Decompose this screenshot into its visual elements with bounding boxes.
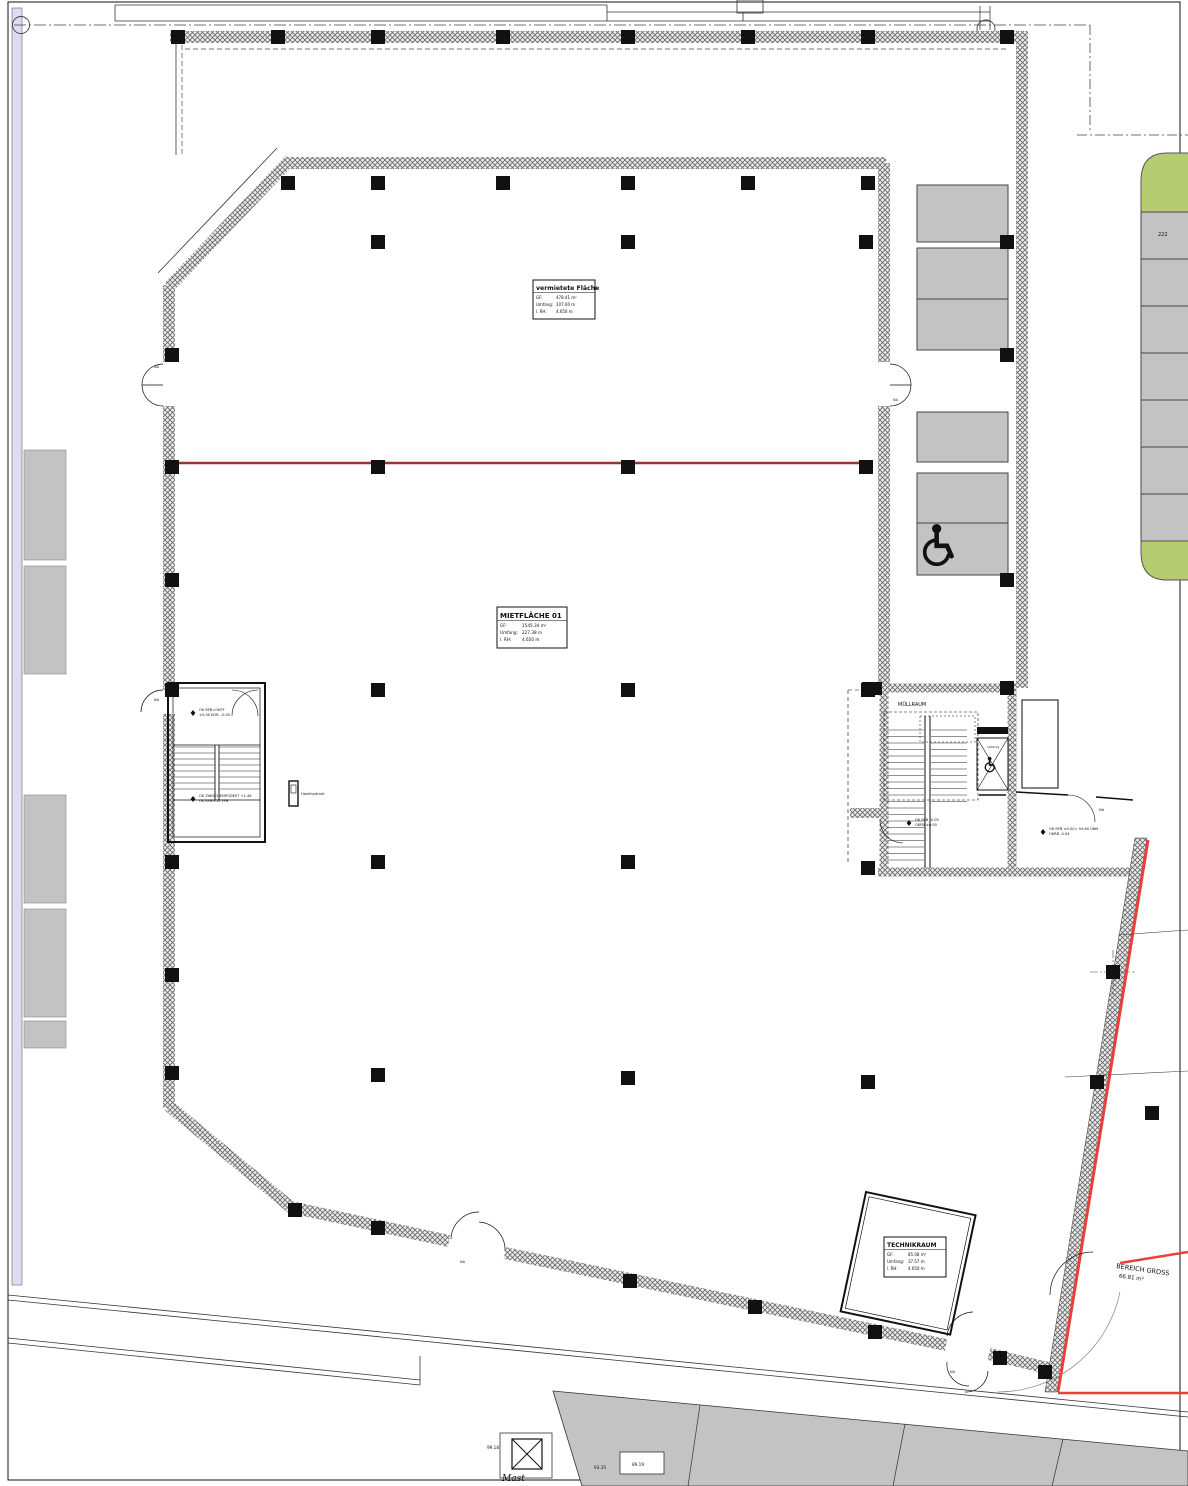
label-box-vermietete: vermietete Fläche GF: 478.41 m² Umfang: … [533,280,599,319]
column [496,30,510,44]
column [165,855,179,869]
green-cap-top [1141,153,1188,212]
red-boundary-line [1058,840,1148,1392]
door-swing [451,1212,479,1239]
column [859,460,873,474]
svg-text:NA: NA [460,1260,466,1264]
stall-number: 222 [1158,232,1168,238]
column [1106,965,1120,979]
svg-text:227.38 m: 227.38 m [522,630,542,635]
elevator-wheelchair-icon [985,757,995,772]
column [165,348,179,362]
parking-stall [917,412,1008,462]
column [1000,681,1014,695]
door-swing [1068,795,1095,822]
column [371,1221,385,1235]
site-block [24,450,66,560]
street-parking-stall [1141,447,1188,494]
svg-text:l. RH:: l. RH: [536,309,547,314]
parking-stall [917,248,1008,299]
area-title: TECHNIKRAUM [887,1242,936,1249]
door-swing [232,690,258,716]
mast-label: Mast [501,1474,525,1484]
column [271,30,285,44]
site-block [24,566,66,674]
svg-text:l. RH:: l. RH: [500,637,511,642]
column [861,1075,875,1089]
svg-text:4.650 m: 4.650 m [522,637,539,642]
column [371,1068,385,1082]
svg-text:GF:: GF: [500,623,507,628]
column [623,1274,637,1288]
svg-text:85.08 m²: 85.08 m² [908,1252,927,1257]
svg-text:OK RFB -0.05: OK RFB -0.05 [915,818,939,822]
svg-text:OKFB ±0.00: OKFB ±0.00 [915,823,938,827]
dim-99: 99.18 [487,1445,499,1450]
column [371,30,385,44]
column [165,683,179,697]
street-parking-stall [1141,494,1188,541]
column [1000,235,1014,249]
svg-text:NA: NA [950,1370,956,1374]
door-swing [890,385,911,406]
column [1038,1365,1052,1379]
svg-text:GF:: GF: [887,1252,893,1257]
column [371,176,385,190]
svg-text:OK RFB=OK FFB: OK RFB=OK FFB [199,799,229,803]
mast-symbol [500,1433,552,1478]
street-parking-stall [1141,259,1188,306]
column [165,1066,179,1080]
svg-text:OK RFB=OKFF: OK RFB=OKFF [199,708,225,712]
svg-text:37.57 m: 37.57 m [908,1259,925,1264]
column [496,176,510,190]
area-title: MIETFLÄCHE 01 [500,611,562,620]
svg-text:NA: NA [154,698,160,702]
column [861,176,875,190]
column [371,460,385,474]
door-swing [142,364,163,385]
parking-stall [917,185,1008,242]
door-swing [479,1222,505,1251]
street-parking-stall [1141,306,1188,353]
level-annotations: OK RFB=OKFF ±0.00 KOR. -0.05 OK ZWISCHEN… [191,708,1099,836]
column [621,460,635,474]
svg-text:OK RFB ±0.00= 94.60 ÜNN: OK RFB ±0.00= 94.60 ÜNN [1049,826,1098,831]
column [371,855,385,869]
column [165,460,179,474]
column [621,235,635,249]
svg-text:OKRB -0.04: OKRB -0.04 [1049,832,1070,836]
dim-89: 89.19 [632,1462,644,1467]
column [859,235,873,249]
door-swing [947,1362,969,1386]
column [861,30,875,44]
label-box-technikraum: TECHNIKRAUM GF: 85.08 m² Umfang: 37.57 m… [884,1237,946,1277]
svg-text:GF:: GF: [536,295,542,300]
column [621,855,635,869]
column [165,968,179,982]
svg-text:4.650 m: 4.650 m [556,309,573,314]
column [281,176,295,190]
svg-text:1545.34 m²: 1545.34 m² [522,623,547,628]
column [371,235,385,249]
column [1145,1106,1159,1120]
handhydrant-label: Handhydrant [301,792,325,796]
parking-stall [917,523,1008,575]
street-parking-strip: 222 [1141,153,1188,580]
elevator-capacity: 1000 kg [987,745,999,749]
door-swing [890,364,911,385]
column [993,1351,1007,1365]
street-parking-stall [1141,353,1188,400]
property-strip [12,8,22,1285]
svg-text:66.81 m²: 66.81 m² [1118,1273,1144,1283]
bereich-gross-label: BEREICH GROSS 66.81 m² [1114,1262,1169,1286]
site-block [24,795,66,903]
green-cap-bottom [1141,541,1188,580]
elevator [977,727,1008,795]
svg-text:Umfang:: Umfang: [536,302,553,307]
column [371,683,385,697]
label-box-mietflaeche: MIETFLÄCHE 01 GF: 1545.34 m² Umfang: 227… [497,607,567,648]
column [861,683,875,697]
interior-stalls [917,185,1008,575]
column [621,1071,635,1085]
svg-text:NA: NA [154,365,160,369]
column [288,1203,302,1217]
floor-plan-drawing: 222 [0,0,1188,1486]
side-shaft [1022,700,1058,788]
left-site-blocks [24,450,66,1048]
column [1000,573,1014,587]
svg-text:478.41 m²: 478.41 m² [556,295,577,300]
parking-stall [917,473,1008,523]
column [741,30,755,44]
floor-plan-page: 222 [0,0,1188,1486]
axis-lines [13,6,1188,157]
area-title: vermietete Fläche [536,285,599,292]
column [861,861,875,875]
svg-text:4.650 m: 4.650 m [908,1266,925,1271]
svg-text:l. RH:: l. RH: [887,1266,898,1271]
aufzugschacht-label: AUFZUGSCHACHT [979,730,1006,734]
parking-stall [917,299,1008,350]
column [621,176,635,190]
column [165,573,179,587]
left-stair-core [168,683,265,842]
column [1090,1075,1104,1089]
column [748,1300,762,1314]
svg-text:±0.00 KOR. -0.05: ±0.00 KOR. -0.05 [199,713,230,717]
handhydrant: Handhydrant [289,781,325,806]
muellraum-label: MÜLLRAUM [898,701,926,708]
site-block [24,909,66,1017]
column [1000,348,1014,362]
street-parking-stall [1141,400,1188,447]
svg-text:NA: NA [893,398,899,402]
door-swing [141,690,163,712]
road-area: Mast 99.18 93.35 89.19 [8,1295,1188,1486]
svg-text:NA: NA [1099,808,1105,812]
dim-93: 93.35 [594,1465,606,1470]
svg-text:Umfang:: Umfang: [887,1259,904,1264]
svg-text:Umfang:: Umfang: [500,630,518,635]
column [1000,30,1014,44]
column [621,683,635,697]
door-swing [232,690,258,716]
door-swing [965,1371,988,1392]
slanted-wall [1045,838,1188,1393]
column [741,176,755,190]
door-swing [142,385,163,406]
column [621,30,635,44]
site-block [24,1021,66,1048]
column [868,1325,882,1339]
svg-text:OK ZWISCHENPODEST +1.48: OK ZWISCHENPODEST +1.48 [199,794,252,798]
right-stair-core [848,682,1133,868]
svg-text:107.00 m: 107.00 m [556,302,575,307]
column [171,30,185,44]
